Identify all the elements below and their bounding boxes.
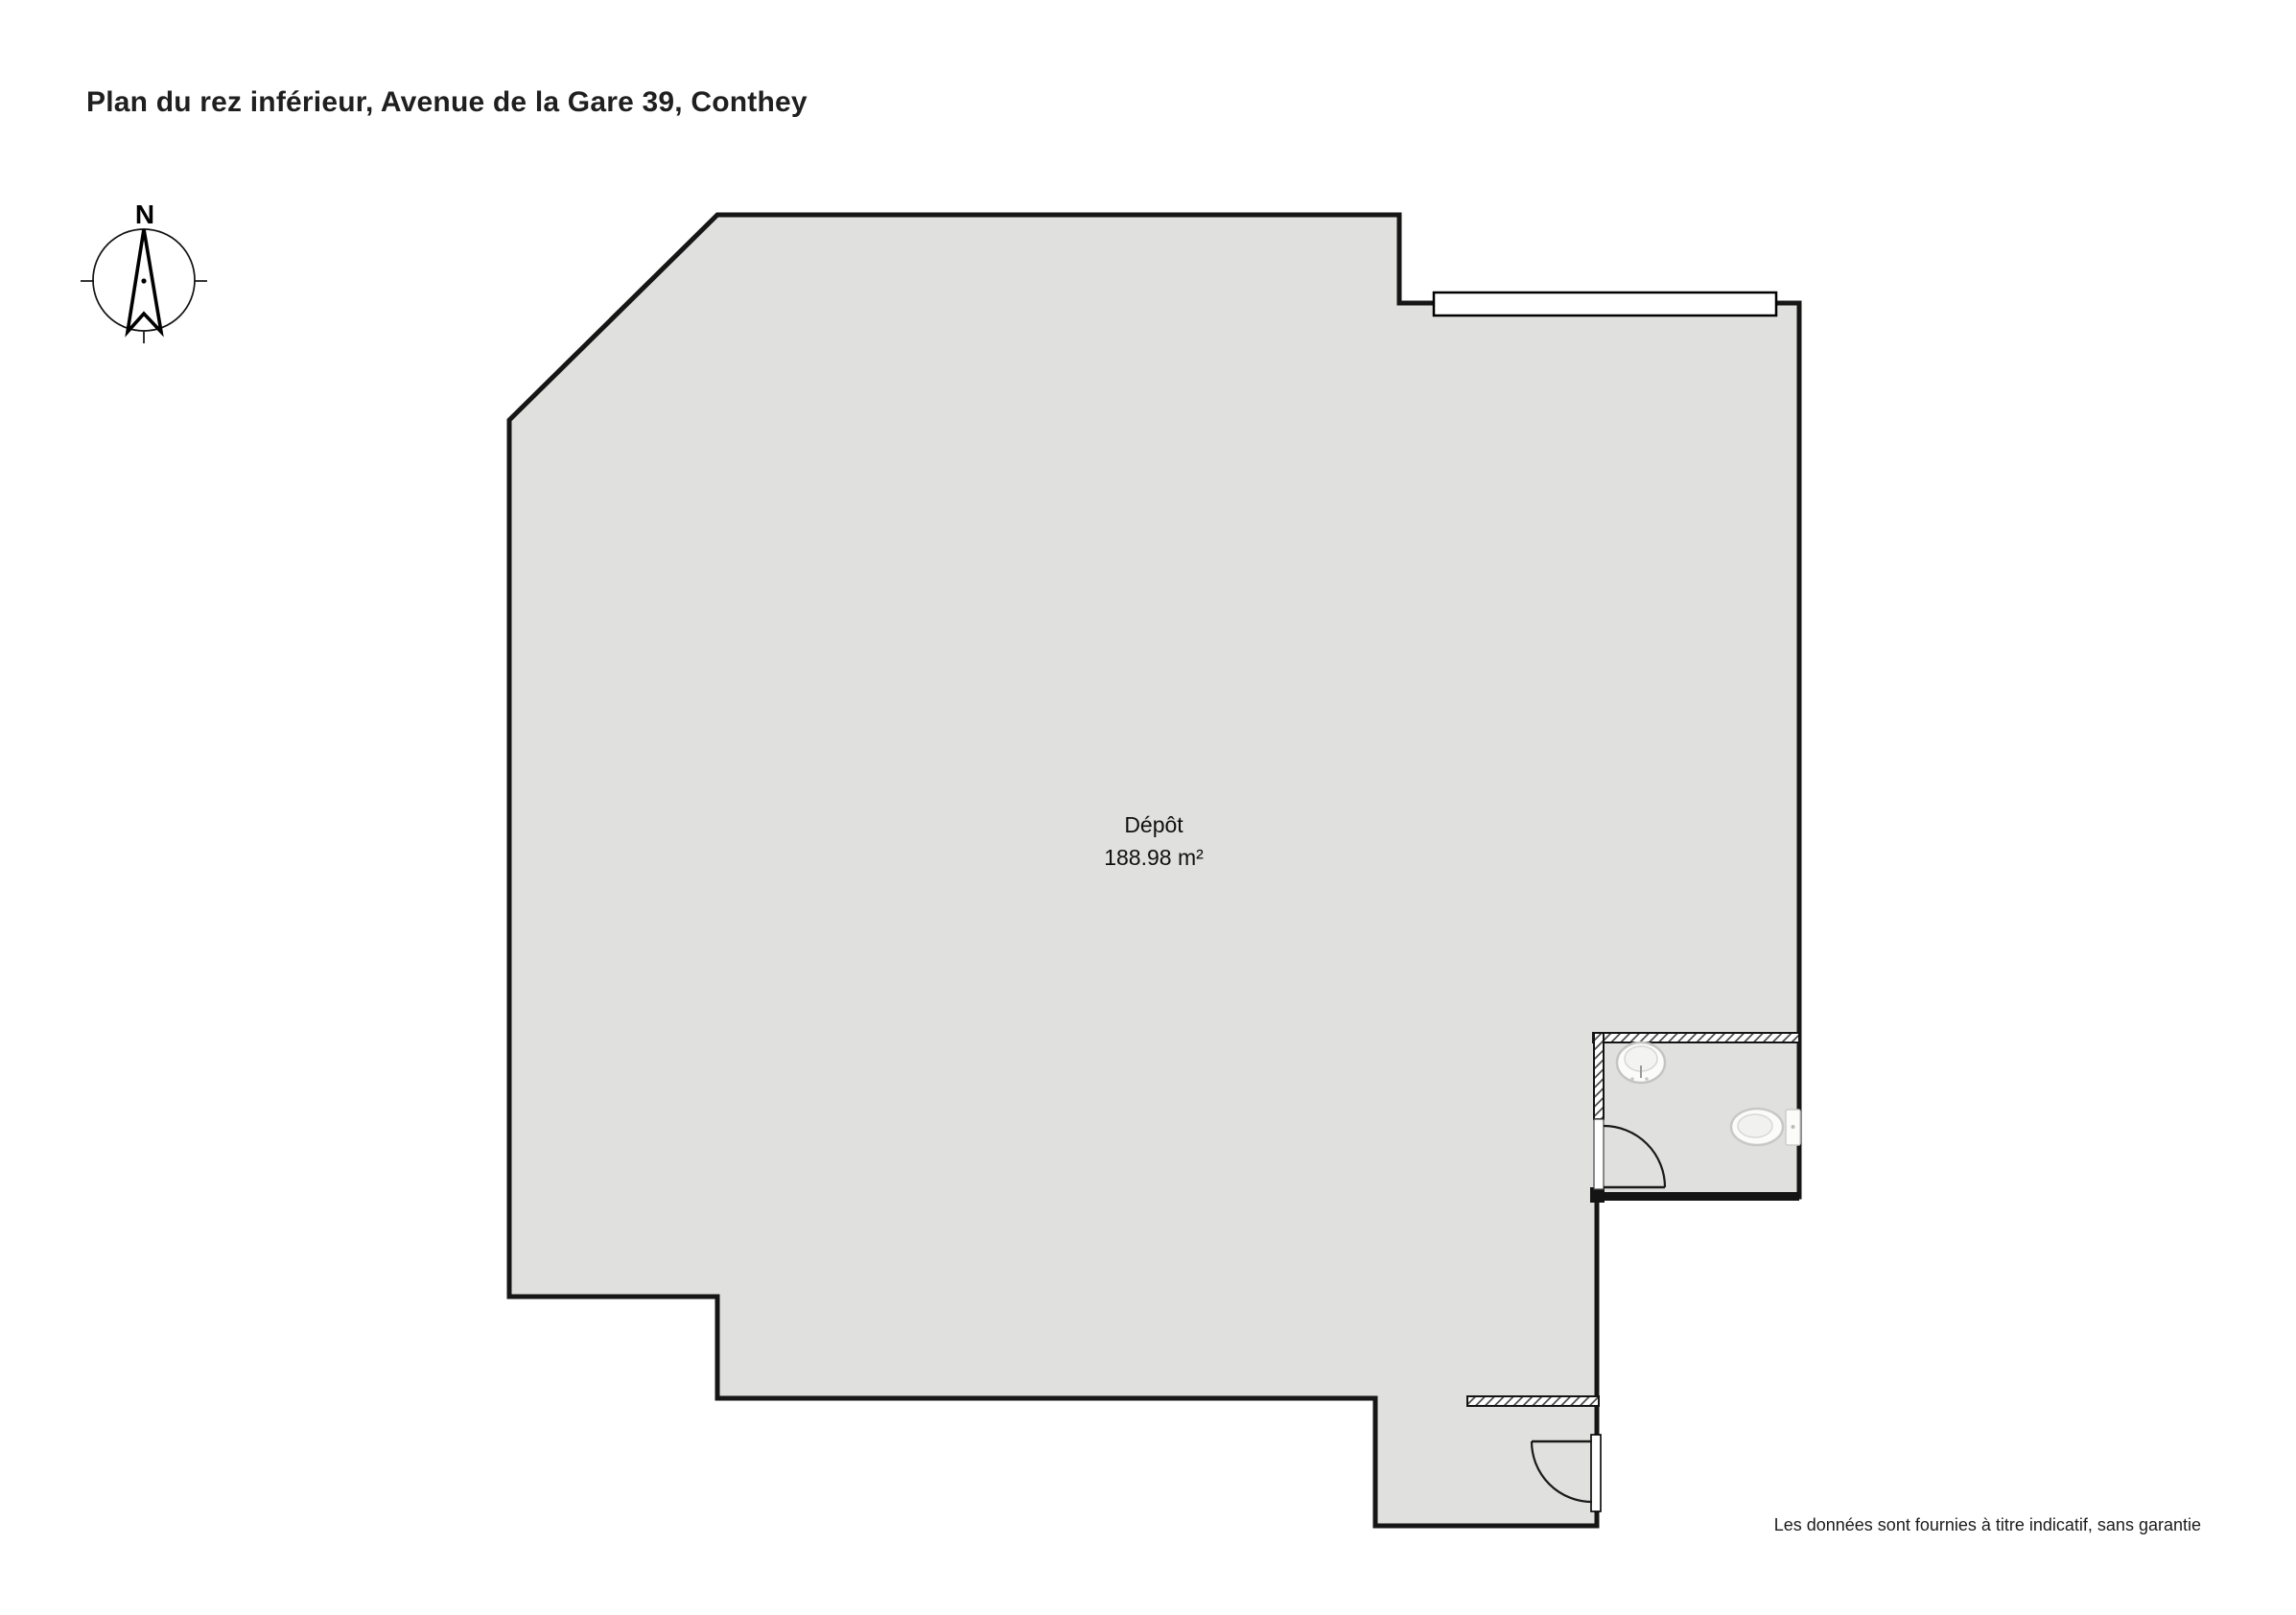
bathroom-left-wall-hatched (1594, 1033, 1604, 1119)
window-icon (1434, 293, 1776, 316)
compass-center-dot (141, 278, 146, 283)
annex-partition-wall-hatched (1467, 1396, 1599, 1406)
room-label: Dépôt 188.98 m² (1010, 808, 1298, 874)
bathroom-top-wall-hatched (1593, 1033, 1799, 1042)
bathroom-door-opening (1594, 1119, 1604, 1189)
compass-north-label: N (121, 199, 169, 230)
compass-icon (81, 229, 207, 343)
entrance-door-opening (1591, 1435, 1601, 1511)
floorplan-page: Plan du rez inférieur, Avenue de la Gare… (0, 0, 2296, 1615)
sink-icon (1617, 1042, 1665, 1083)
room-area: 188.98 m² (1010, 841, 1298, 874)
toilet-icon (1731, 1109, 1800, 1145)
floorplan-drawing (0, 0, 2296, 1615)
bathroom-bottom-wall (1591, 1192, 1799, 1201)
disclaimer-text: Les données sont fournies à titre indica… (1774, 1515, 2201, 1535)
room-name: Dépôt (1010, 808, 1298, 841)
